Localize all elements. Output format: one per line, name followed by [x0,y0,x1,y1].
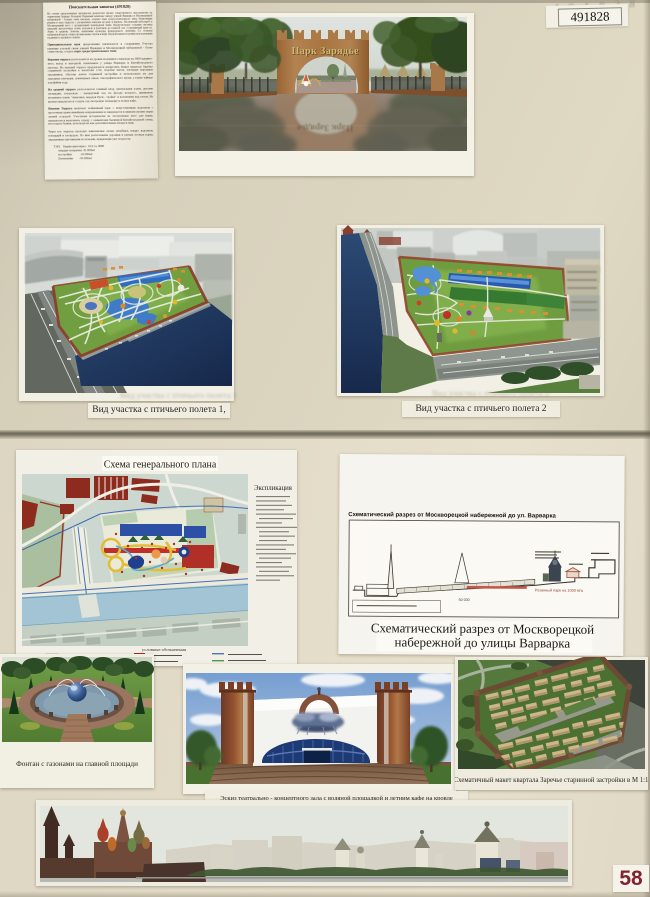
svg-text:Фонтан с газонами на главной п: Фонтан с газонами на главной площади [16,760,138,768]
svg-text:Розанный парк на 1000 мга: Розанный парк на 1000 мга [535,588,584,592]
svg-text:Схема генерального плана: Схема генерального плана [104,460,217,471]
svg-text:Парк Зарядье: Парк Зарядье [292,46,360,57]
svg-text:50 000: 50 000 [459,598,470,602]
svg-text:условные обозначения: условные обозначения [142,647,187,652]
svg-text:Схематический разрез от Москво: Схематический разрез от Москворецкой наб… [348,511,556,519]
svg-text:Экспликация: Экспликация [254,485,292,492]
svg-text:набережной до улицы Варварка: набережной до улицы Варварка [395,634,571,650]
svg-text:Схематичный макет квартала За: Схематичный макет квартала Заречье стари… [455,777,648,784]
svg-text:Парк Зарядье: Парк Зарядье [297,123,353,133]
